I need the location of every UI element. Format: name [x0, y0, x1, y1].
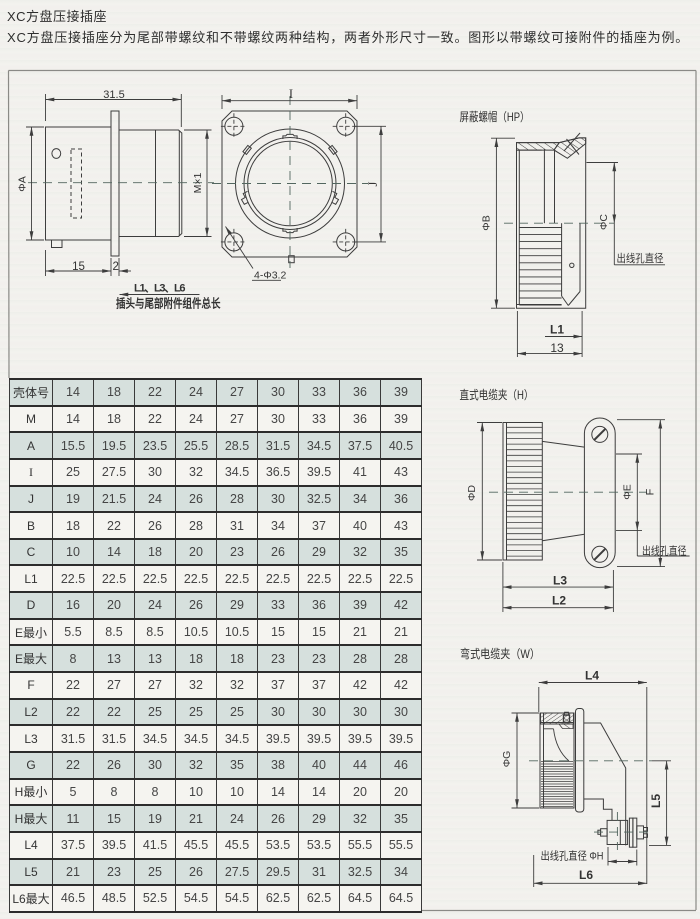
svg-text:I: I: [289, 87, 293, 101]
svg-text:15: 15: [72, 261, 85, 273]
svg-text:弯式电缆夹（W）: 弯式电缆夹（W）: [460, 646, 540, 661]
svg-text:L3: L3: [553, 574, 567, 588]
svg-text:出线孔直径 ΦH: 出线孔直径 ΦH: [541, 849, 604, 863]
svg-text:31.5: 31.5: [103, 89, 124, 101]
svg-text:J: J: [366, 181, 380, 186]
svg-text:M×1: M×1: [192, 172, 204, 193]
svg-text:L6: L6: [579, 868, 593, 882]
svg-text:ΦG: ΦG: [501, 751, 513, 768]
svg-text:ΦB: ΦB: [481, 215, 493, 230]
svg-text:ΦA: ΦA: [17, 176, 29, 191]
svg-text:2: 2: [112, 261, 118, 273]
svg-text:L4: L4: [585, 669, 599, 683]
svg-text:F: F: [645, 488, 657, 495]
svg-text:ΦD: ΦD: [466, 485, 478, 501]
svg-text:4-Φ3.2: 4-Φ3.2: [254, 270, 286, 282]
svg-text:L2: L2: [552, 594, 566, 608]
svg-text:L1: L1: [550, 323, 564, 337]
svg-text:L5: L5: [649, 794, 663, 808]
svg-text:出线孔直径: 出线孔直径: [617, 251, 664, 265]
svg-text:屏蔽螺帽（HP）: 屏蔽螺帽（HP）: [460, 109, 530, 124]
svg-text:直式电缆夹（H）: 直式电缆夹（H）: [460, 388, 534, 402]
svg-text:插头与尾部附件组件总长: 插头与尾部附件组件总长: [116, 296, 221, 311]
svg-text:L1、L3、L6: L1、L3、L6: [134, 283, 186, 295]
svg-text:13: 13: [550, 341, 564, 355]
svg-text:ΦE: ΦE: [622, 484, 634, 499]
svg-text:出线孔直径: 出线孔直径: [642, 544, 687, 558]
svg-text:ΦC: ΦC: [598, 214, 610, 230]
